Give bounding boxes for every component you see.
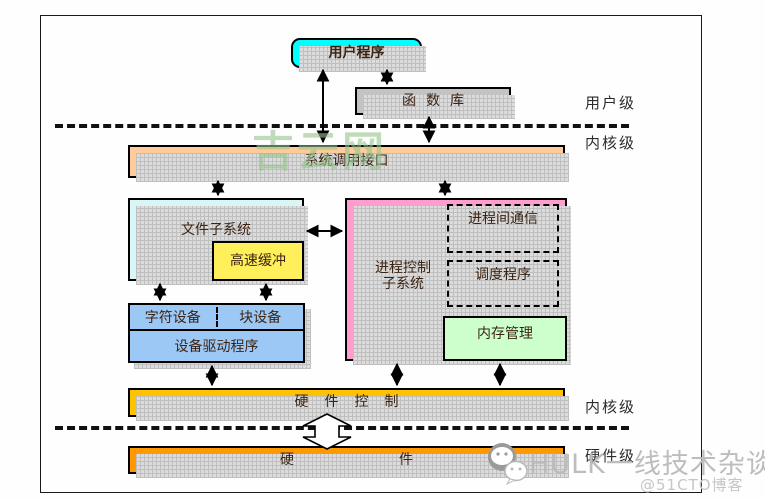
hardware-control-box: 硬件控制 <box>128 388 565 417</box>
buffer-cache-box: 高速缓冲 <box>212 241 304 281</box>
label-kernel-level-top: 内核级 <box>585 132 636 153</box>
label-user-level: 用户级 <box>585 92 636 113</box>
ipc-box: 进程间通信 <box>447 204 559 253</box>
device-driver-box: 设备驱动程序 <box>128 329 305 363</box>
memory-management-label: 内存管理 <box>477 326 533 342</box>
process-subsystem-label: 进程控制 子系统 <box>359 260 447 292</box>
device-boxes-group: 字符设备 块设备 设备驱动程序 <box>128 303 305 363</box>
kernel-hardware-divider <box>55 426 629 430</box>
wechat-icon <box>485 441 533 487</box>
file-subsystem-box: 文件子系统 高速缓冲 <box>128 198 304 281</box>
scheduler-box: 调度程序 <box>447 260 559 307</box>
scheduler-label: 调度程序 <box>475 267 531 283</box>
center-watermark: 吉云网 <box>252 118 387 179</box>
device-type-row: 字符设备 块设备 <box>128 303 305 331</box>
file-subsystem-label: 文件子系统 <box>181 222 251 238</box>
ipc-label: 进程间通信 <box>468 211 538 227</box>
block-device-cell: 块设备 <box>218 305 304 329</box>
function-library-box: 函数库 <box>355 87 511 115</box>
char-device-cell: 字符设备 <box>130 305 216 329</box>
process-control-subsystem-box: 进程控制 子系统 进程间通信 调度程序 内存管理 <box>345 198 567 361</box>
label-kernel-level-bottom: 内核级 <box>585 396 636 417</box>
diagram-canvas: 用户级 内核级 内核级 硬件级 用户程序 函数库 系统调用接口 文件子系统 高速… <box>0 0 765 500</box>
user-program-box: 用户程序 <box>291 38 422 68</box>
memory-management-box: 内存管理 <box>443 316 567 361</box>
bottom-watermark-handle: @51CTO博客 <box>640 474 744 495</box>
buffer-cache-label: 高速缓冲 <box>230 253 286 269</box>
